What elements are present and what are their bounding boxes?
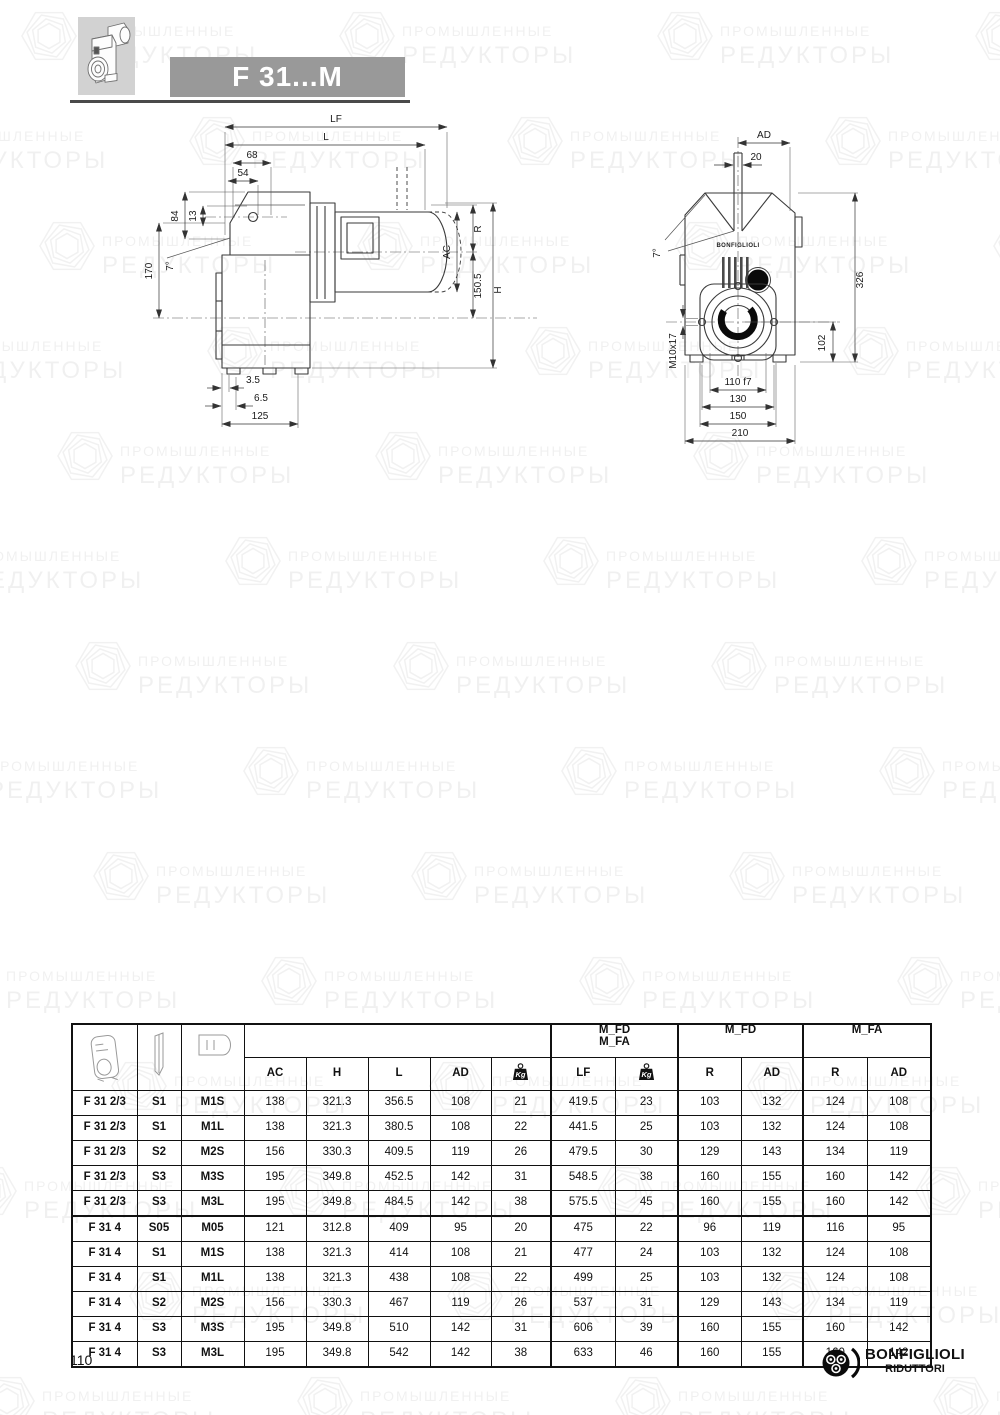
cell-r-fa: 134 <box>803 1141 867 1166</box>
dim-h-label: H <box>493 286 504 293</box>
cell-r-fd: 160 <box>678 1342 741 1368</box>
watermark-hex-icon <box>242 740 300 802</box>
cell-l: 542 <box>368 1342 430 1368</box>
cell-ad: 95 <box>430 1216 491 1242</box>
cell-kg2: 25 <box>615 1116 678 1141</box>
table-row: F 31 4S1M1L138321.3438108224992510313212… <box>72 1267 931 1292</box>
cell-ac: 138 <box>244 1091 306 1116</box>
cell-ad-fa: 142 <box>867 1191 931 1217</box>
watermark-hex-icon <box>992 215 1000 277</box>
watermark: ПРОМЫШЛЕННЫЕРЕДУКТОРЫ <box>710 635 948 700</box>
cell-ad: 119 <box>430 1292 491 1317</box>
cell-m: M2S <box>181 1141 244 1166</box>
cell-ad-fd: 143 <box>741 1141 803 1166</box>
cell-kg2: 24 <box>615 1242 678 1267</box>
cell-kg: 31 <box>491 1166 551 1191</box>
cell-ad: 119 <box>430 1141 491 1166</box>
dim-210-label: 210 <box>732 428 749 439</box>
col-header-l: L <box>368 1058 430 1091</box>
watermark: ПРОМЫШЛЕННЫЕРЕДУКТОРЫ <box>260 950 498 1015</box>
dim-ad-label: AD <box>757 130 771 141</box>
cell-model: F 31 4 <box>72 1317 137 1342</box>
watermark: ПРОМЫШЛЕННЫЕРЕДУКТОРЫ <box>0 110 108 175</box>
dim-150-5-label: 150.5 <box>473 273 484 298</box>
cell-ad: 108 <box>430 1267 491 1292</box>
cell-lf: 419.5 <box>551 1091 615 1116</box>
group-mfa-label: M_FA <box>552 1037 677 1049</box>
group-mfd: M_FD <box>678 1024 803 1058</box>
watermark: ПРОМЫШЛЕННЫЕРЕДУКТОРЫ <box>410 845 648 910</box>
cell-kg2: 25 <box>615 1267 678 1292</box>
spec-table: M_FD M_FA M_FD M_FA AC H L AD LF R AD <box>71 1023 932 1368</box>
cell-ad: 142 <box>430 1317 491 1342</box>
cell-lf: 477 <box>551 1242 615 1267</box>
catalog-page: Kg ПРОМЫШЛЕННЫЕРЕДУКТОРЫПРОМЫШЛЕННЫЕРЕДУ… <box>0 0 1000 1415</box>
dim-3-5-label: 3.5 <box>246 375 260 386</box>
cell-lf: 537 <box>551 1292 615 1317</box>
cell-m: M3S <box>181 1166 244 1191</box>
col-header-ac: AC <box>244 1058 306 1091</box>
watermark: ПРОМЫШЛЕННЫЕРЕДУКТОРЫ <box>0 1370 216 1415</box>
watermark-hex-icon <box>392 635 450 697</box>
col-header-ad-fd: AD <box>741 1058 803 1091</box>
cell-kg2: 38 <box>615 1166 678 1191</box>
cell-s: S2 <box>137 1141 181 1166</box>
cell-s: S3 <box>137 1191 181 1217</box>
cell-ad-fd: 155 <box>741 1342 803 1368</box>
cell-kg2: 30 <box>615 1141 678 1166</box>
watermark-hex-icon <box>0 1160 18 1222</box>
cell-h: 321.3 <box>306 1116 368 1141</box>
shaft-flange-icon <box>151 1031 167 1077</box>
cell-ac: 195 <box>244 1342 306 1368</box>
col-header-kg <box>491 1058 551 1091</box>
cell-ad-fd: 143 <box>741 1292 803 1317</box>
cell-lf: 475 <box>551 1216 615 1242</box>
cell-model: F 31 2/3 <box>72 1191 137 1217</box>
cell-ac: 138 <box>244 1267 306 1292</box>
cell-r-fa: 124 <box>803 1242 867 1267</box>
cell-s: S1 <box>137 1116 181 1141</box>
group-mfd-label: M_FD <box>552 1025 677 1037</box>
cell-r-fd: 103 <box>678 1091 741 1116</box>
cell-ac: 138 <box>244 1242 306 1267</box>
watermark-hex-icon <box>656 5 714 67</box>
cell-m: M1L <box>181 1267 244 1292</box>
watermark-hex-icon <box>710 635 768 697</box>
cell-r-fa: 116 <box>803 1216 867 1242</box>
bonfiglioli-gear-icon <box>820 1346 860 1382</box>
group-mfd-mfa: M_FD M_FA <box>551 1024 678 1058</box>
watermark-hex-icon <box>974 5 1000 67</box>
watermark-hex-icon <box>74 635 132 697</box>
cell-kg: 38 <box>491 1342 551 1368</box>
cell-h: 349.8 <box>306 1317 368 1342</box>
cell-kg: 38 <box>491 1191 551 1217</box>
footer-brand-line2: RIDUTTORI <box>865 1363 965 1375</box>
col-header-ad-fa: AD <box>867 1058 931 1091</box>
watermark: ПРОМЫШЛЕННЫЕРЕДУКТОРЫ <box>542 530 780 595</box>
cell-s: S1 <box>137 1242 181 1267</box>
cell-model: F 31 2/3 <box>72 1141 137 1166</box>
dim-r-label: R <box>473 225 484 232</box>
cell-r-fd: 160 <box>678 1191 741 1217</box>
watermark: ПРОМЫШЛЕННЫЕРЕДУКТОРЫ <box>74 635 312 700</box>
cell-ad: 142 <box>430 1342 491 1368</box>
cell-lf: 548.5 <box>551 1166 615 1191</box>
watermark: ПРОМЫШЛЕННЫЕРЕДУКТОРЫ <box>392 635 630 700</box>
cell-model: F 31 2/3 <box>72 1166 137 1191</box>
cell-lf: 575.5 <box>551 1191 615 1217</box>
cell-h: 312.8 <box>306 1216 368 1242</box>
watermark-hex-icon <box>560 740 618 802</box>
cell-kg: 26 <box>491 1141 551 1166</box>
watermark: ПРОМЫШЛЕННЫЕРЕДУКТОРЫ <box>860 530 1000 595</box>
cell-r-fd: 129 <box>678 1292 741 1317</box>
watermark-hex-icon <box>410 845 468 907</box>
watermark: ПРОМЫШЛЕННЫЕРЕДУКТОРЫ <box>0 530 144 595</box>
table-row: F 31 2/3S1M1S138321.3356.510821419.52310… <box>72 1091 931 1116</box>
watermark: ПРОМЫШЛЕННЫЕРЕДУКТОРЫ <box>728 845 966 910</box>
cell-ad-fa: 142 <box>867 1166 931 1191</box>
cell-r-fd: 103 <box>678 1267 741 1292</box>
watermark: ПРОМЫШЛЕННЫЕРЕДУКТОРЫ <box>878 740 1000 805</box>
cell-l: 452.5 <box>368 1166 430 1191</box>
page-title: F 31...M <box>232 61 343 93</box>
header-rule <box>70 100 410 103</box>
cell-r-fd: 103 <box>678 1242 741 1267</box>
col-header-r-fa: R <box>803 1058 867 1091</box>
cell-ad-fd: 132 <box>741 1116 803 1141</box>
cell-m: M1S <box>181 1091 244 1116</box>
cell-ad-fd: 155 <box>741 1166 803 1191</box>
cell-kg2: 39 <box>615 1317 678 1342</box>
col-header-ad: AD <box>430 1058 491 1091</box>
breather-plug <box>746 268 771 293</box>
gearmotor-3d-icon <box>78 17 135 95</box>
cell-ac: 121 <box>244 1216 306 1242</box>
watermark: ПРОМЫШЛЕННЫЕРЕДУКТОРЫ <box>0 320 126 385</box>
table-row: F 31 2/3S1M1L138321.3380.510822441.52510… <box>72 1116 931 1141</box>
watermark: ПРОМЫШЛЕННЫЕРЕДУКТОРЫ <box>224 530 462 595</box>
col-header-kg2 <box>615 1058 678 1091</box>
cell-kg2: 22 <box>615 1216 678 1242</box>
cell-ac: 195 <box>244 1191 306 1217</box>
watermark-hex-icon <box>896 950 954 1012</box>
cell-kg2: 45 <box>615 1191 678 1217</box>
watermark-hex-icon <box>728 845 786 907</box>
watermark-hex-icon <box>20 5 78 67</box>
watermark-hex-icon <box>878 740 936 802</box>
dim-l-label: L <box>323 132 329 143</box>
watermark-hex-icon <box>0 1370 36 1415</box>
cell-ad-fd: 155 <box>741 1191 803 1217</box>
side-view-drawing: LF L 68 54 13 84 170 7° R AC 150.5 H 3.5 <box>145 105 545 450</box>
cell-ad-fd: 119 <box>741 1216 803 1242</box>
cell-s: S3 <box>137 1166 181 1191</box>
footer-brand-line1: BONFIGLIOLI <box>865 1346 965 1363</box>
table-row: F 31 4S3M3S195349.8510142316063916015516… <box>72 1317 931 1342</box>
dim-angle-label: 7° <box>652 248 663 258</box>
cell-lf: 441.5 <box>551 1116 615 1141</box>
cell-model: F 31 4 <box>72 1216 137 1242</box>
page-number: 110 <box>70 1352 92 1368</box>
cell-s: S1 <box>137 1267 181 1292</box>
table-row: F 31 4S3M3L195349.8542142386334616015516… <box>72 1342 931 1368</box>
watermark-hex-icon <box>224 530 282 592</box>
cell-l: 356.5 <box>368 1091 430 1116</box>
cell-m: M2S <box>181 1292 244 1317</box>
cell-lf: 499 <box>551 1267 615 1292</box>
cell-model: F 31 2/3 <box>72 1091 137 1116</box>
cell-ad-fa: 108 <box>867 1116 931 1141</box>
watermark-hex-icon <box>38 215 96 277</box>
cell-r-fa: 124 <box>803 1116 867 1141</box>
cell-s: S2 <box>137 1292 181 1317</box>
header-spacer <box>244 1024 551 1058</box>
dim-angle-label: 7° <box>165 261 176 271</box>
cell-ad: 142 <box>430 1191 491 1217</box>
watermark: ПРОМЫШЛЕННЫЕРЕДУКТОРЫ <box>974 5 1000 70</box>
cell-l: 409 <box>368 1216 430 1242</box>
cell-r-fa: 160 <box>803 1317 867 1342</box>
cell-r-fa: 160 <box>803 1191 867 1217</box>
watermark: ПРОМЫШЛЕННЫЕРЕДУКТОРЫ <box>578 950 816 1015</box>
watermark-hex-icon <box>578 950 636 1012</box>
cell-ac: 156 <box>244 1292 306 1317</box>
cell-ac: 195 <box>244 1166 306 1191</box>
watermark: ПРОМЫШЛЕННЫЕРЕДУКТОРЫ <box>992 215 1000 280</box>
dim-ac-label: AC <box>442 245 453 259</box>
cell-m: M3S <box>181 1317 244 1342</box>
cell-s: S3 <box>137 1317 181 1342</box>
cell-kg: 21 <box>491 1242 551 1267</box>
watermark-hex-icon <box>542 530 600 592</box>
watermark: ПРОМЫШЛЕННЫЕРЕДУКТОРЫ <box>296 1370 534 1415</box>
front-view-drawing: BONFIGLIOLI <box>650 125 950 470</box>
col-header-r-fd: R <box>678 1058 741 1091</box>
cell-l: 484.5 <box>368 1191 430 1217</box>
col-icon-gearmotor <box>72 1024 137 1091</box>
dim-68-label: 68 <box>246 150 258 161</box>
cell-h: 330.3 <box>306 1141 368 1166</box>
cell-kg: 22 <box>491 1116 551 1141</box>
cell-s: S3 <box>137 1342 181 1368</box>
cell-kg: 26 <box>491 1292 551 1317</box>
cell-l: 467 <box>368 1292 430 1317</box>
centerlines <box>666 137 840 377</box>
dim-150-label: 150 <box>730 411 747 422</box>
cell-m: M05 <box>181 1216 244 1242</box>
watermark: ПРОМЫШЛЕННЫЕРЕДУКТОРЫ <box>0 740 162 805</box>
col-header-h: H <box>306 1058 368 1091</box>
dim-84-label: 84 <box>170 210 181 222</box>
group-mfa: M_FA <box>803 1024 931 1058</box>
cell-ad-fa: 108 <box>867 1242 931 1267</box>
cell-model: F 31 4 <box>72 1267 137 1292</box>
cell-ad: 142 <box>430 1166 491 1191</box>
watermark-hex-icon <box>56 425 114 487</box>
cell-kg: 31 <box>491 1317 551 1342</box>
watermark: ПРОМЫШЛЕННЫЕРЕДУКТОРЫ <box>656 5 894 70</box>
cell-kg2: 46 <box>615 1342 678 1368</box>
cell-ad-fa: 108 <box>867 1091 931 1116</box>
cell-ad-fd: 155 <box>741 1317 803 1342</box>
cell-kg: 21 <box>491 1091 551 1116</box>
watermark-hex-icon <box>860 530 918 592</box>
dim-6-5-label: 6.5 <box>254 393 268 404</box>
cell-r-fd: 96 <box>678 1216 741 1242</box>
cell-kg: 20 <box>491 1216 551 1242</box>
cell-m: M1L <box>181 1116 244 1141</box>
cell-model: F 31 4 <box>72 1292 137 1317</box>
table-row: F 31 4S1M1S138321.3414108214772410313212… <box>72 1242 931 1267</box>
cell-model: F 31 4 <box>72 1242 137 1267</box>
cell-h: 349.8 <box>306 1166 368 1191</box>
motor-icon <box>193 1031 233 1059</box>
cell-m: M3L <box>181 1191 244 1217</box>
cell-ad-fa: 142 <box>867 1317 931 1342</box>
cell-ad-fd: 132 <box>741 1242 803 1267</box>
cell-h: 321.3 <box>306 1267 368 1292</box>
dim-326-label: 326 <box>855 271 866 288</box>
cell-ad-fa: 108 <box>867 1267 931 1292</box>
cell-r-fd: 160 <box>678 1166 741 1191</box>
cell-ad-fa: 95 <box>867 1216 931 1242</box>
cell-r-fd: 160 <box>678 1317 741 1342</box>
watermark-hex-icon <box>614 1370 672 1415</box>
cell-r-fa: 124 <box>803 1267 867 1292</box>
col-header-lf: LF <box>551 1058 615 1091</box>
cell-r-fd: 129 <box>678 1141 741 1166</box>
cell-h: 321.3 <box>306 1091 368 1116</box>
product-thumbnail <box>78 17 135 95</box>
bonfiglioli-logo: BONFIGLIOLI RIDUTTORI <box>820 1346 965 1382</box>
cell-ad-fd: 132 <box>741 1267 803 1292</box>
cell-ac: 195 <box>244 1317 306 1342</box>
dim-lf-label: LF <box>330 114 342 125</box>
housing-brand-label: BONFIGLIOLI <box>716 243 759 249</box>
dim-102-label: 102 <box>817 334 828 351</box>
cell-kg2: 31 <box>615 1292 678 1317</box>
cell-l: 438 <box>368 1267 430 1292</box>
cell-lf: 479.5 <box>551 1141 615 1166</box>
cell-m: M1S <box>181 1242 244 1267</box>
watermark: ПРОМЫШЛЕННЫЕРЕДУКТОРЫ <box>896 950 1000 1015</box>
dim-20-label: 20 <box>750 152 762 163</box>
watermark: ПРОМЫШЛЕННЫЕРЕДУКТОРЫ <box>560 740 798 805</box>
cell-kg2: 23 <box>615 1091 678 1116</box>
table-row: F 31 4S05M05121312.840995204752296119116… <box>72 1216 931 1242</box>
cell-l: 414 <box>368 1242 430 1267</box>
cell-model: F 31 2/3 <box>72 1116 137 1141</box>
watermark-hex-icon <box>92 845 150 907</box>
cell-kg: 22 <box>491 1267 551 1292</box>
watermark: ПРОМЫШЛЕННЫЕРЕДУКТОРЫ <box>242 740 480 805</box>
section-banner: F 31...M <box>170 57 405 97</box>
table-row: F 31 2/3S2M2S156330.3409.511926479.53012… <box>72 1141 931 1166</box>
dim-54-label: 54 <box>237 168 249 179</box>
cell-ad: 108 <box>430 1242 491 1267</box>
cell-m: M3L <box>181 1342 244 1368</box>
cell-h: 321.3 <box>306 1242 368 1267</box>
cell-h: 330.3 <box>306 1292 368 1317</box>
cell-l: 510 <box>368 1317 430 1342</box>
dim-170-label: 170 <box>145 262 155 279</box>
watermark-hex-icon <box>296 1370 354 1415</box>
cell-r-fa: 134 <box>803 1292 867 1317</box>
col-icon-shaft <box>137 1024 181 1091</box>
cell-r-fa: 160 <box>803 1166 867 1191</box>
col-icon-motor <box>181 1024 244 1091</box>
cell-s: S1 <box>137 1091 181 1116</box>
table-row: F 31 2/3S3M3S195349.8452.514231548.53816… <box>72 1166 931 1191</box>
watermark: ПРОМЫШЛЕННЫЕРЕДУКТОРЫ <box>0 950 180 1015</box>
dim-130-label: 130 <box>730 394 747 405</box>
cell-ac: 138 <box>244 1116 306 1141</box>
cell-ad-fd: 132 <box>741 1091 803 1116</box>
dim-m10x17-label: M10x17 <box>668 333 679 369</box>
cell-ac: 156 <box>244 1141 306 1166</box>
weight-kg-icon <box>638 1063 655 1081</box>
brake-option-dashed <box>397 167 461 292</box>
table-row: F 31 2/3S3M3L195349.8484.514238575.54516… <box>72 1191 931 1217</box>
cell-h: 349.8 <box>306 1191 368 1217</box>
cell-l: 380.5 <box>368 1116 430 1141</box>
cell-lf: 633 <box>551 1342 615 1368</box>
weight-kg-icon <box>512 1063 529 1081</box>
cell-r-fd: 103 <box>678 1116 741 1141</box>
watermark-hex-icon <box>260 950 318 1012</box>
cell-ad: 108 <box>430 1091 491 1116</box>
motor-body <box>310 203 447 302</box>
cell-lf: 606 <box>551 1317 615 1342</box>
dim-110f7-label: 110 f7 <box>724 377 751 388</box>
cell-r-fa: 124 <box>803 1091 867 1116</box>
cell-ad-fa: 119 <box>867 1141 931 1166</box>
cell-l: 409.5 <box>368 1141 430 1166</box>
dim-13-label: 13 <box>188 210 199 222</box>
watermark: ПРОМЫШЛЕННЫЕРЕДУКТОРЫ <box>92 845 330 910</box>
gearmotor-icon <box>83 1031 127 1085</box>
watermark: ПРОМЫШЛЕННЫЕРЕДУКТОРЫ <box>614 1370 852 1415</box>
table-row: F 31 4S2M2S156330.3467119265373112914313… <box>72 1292 931 1317</box>
cell-s: S05 <box>137 1216 181 1242</box>
cell-ad: 108 <box>430 1116 491 1141</box>
cell-ad-fa: 119 <box>867 1292 931 1317</box>
dim-125-label: 125 <box>252 411 269 422</box>
cell-h: 349.8 <box>306 1342 368 1368</box>
